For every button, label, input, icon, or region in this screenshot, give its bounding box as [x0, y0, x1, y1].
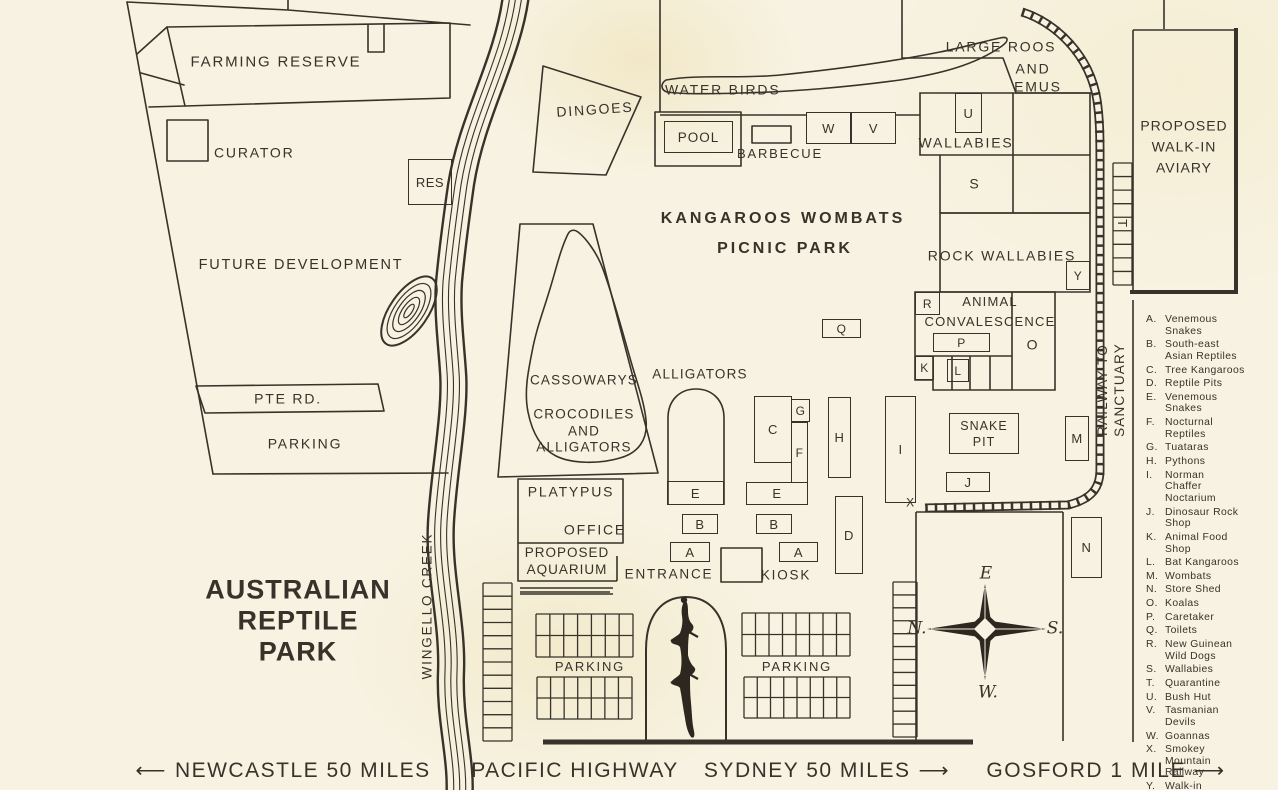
legend-item: U.Bush Hut	[1146, 692, 1258, 704]
legend-item: C.Tree Kangaroos	[1146, 365, 1258, 377]
box-w-goannas: W	[806, 112, 851, 144]
legend-item: W.Goannas	[1146, 731, 1258, 743]
wallabies-label: WALLABIES	[918, 134, 1013, 152]
parking-grid	[536, 614, 633, 657]
box-b2-asian-reptiles: B	[756, 514, 792, 534]
large-roos-label-3: EMUS	[1014, 78, 1062, 96]
parking-strip-east	[893, 582, 917, 737]
picnic-park-label: PICNIC PARK	[717, 239, 853, 259]
parking-south-label-2: PARKING	[762, 659, 832, 675]
letter-o-koalas: O	[1027, 336, 1040, 354]
parking-south-label-1: PARKING	[555, 659, 625, 675]
box-v-tasmanian-devils: V	[851, 112, 896, 144]
railway-to-sanctuary-label: RAILWAY TO SANCTUARY	[1095, 307, 1129, 473]
box-e1-venemous-snakes: E	[667, 481, 724, 505]
right-arrow-icon: ⟶	[918, 759, 950, 782]
box-d-reptile-pits: D	[835, 496, 863, 574]
legend-item: K.Animal Food Shop	[1146, 532, 1258, 555]
box-b1-asian-reptiles: B	[682, 514, 718, 534]
cassowarys-label: CASSOWARYS	[530, 373, 638, 390]
entrance-arch-goanna	[646, 597, 726, 741]
kiosk-box	[721, 548, 762, 582]
pacific-highway-label: PACIFIC HIGHWAY	[467, 758, 683, 784]
farming-reserve-label: FARMING RESERVE	[191, 54, 362, 73]
alligators-label: ALLIGATORS	[652, 367, 748, 384]
snake-pit-box: SNAKE PIT	[949, 413, 1019, 454]
parking-strip-west	[483, 583, 512, 741]
proposed-aquarium-label: PROPOSED AQUARIUM	[525, 544, 610, 578]
kangaroos-wombats-label: KANGAROOS WOMBATS	[661, 209, 905, 229]
box-p-caretaker: P	[933, 333, 990, 352]
barbecue-label: BARBECUE	[737, 146, 823, 162]
legend-item: G.Tuataras	[1146, 442, 1258, 454]
barbecue-box	[752, 126, 791, 143]
letter-t-quarantine: T	[1114, 219, 1130, 229]
legend-item: I.Norman Chaffer Noctarium	[1146, 470, 1258, 505]
future-development-label: FUTURE DEVELOPMENT	[199, 256, 404, 274]
legend-item: O.Koalas	[1146, 598, 1258, 610]
parking-grid	[742, 613, 850, 656]
box-j-dinosaur-rock-shop: J	[946, 472, 990, 492]
legend-item: A.Venemous Snakes	[1146, 314, 1258, 337]
wingello-creek-label: WINGELLO CREEK	[420, 533, 437, 680]
box-f-nocturnal-reptiles: F	[791, 422, 808, 483]
pool-box: POOL	[664, 121, 733, 153]
legend-item: N.Store Shed	[1146, 584, 1258, 596]
compass-rose	[927, 584, 1046, 680]
res-box: RES	[408, 159, 452, 205]
dingoes-pen	[533, 66, 641, 175]
compass-w: W.	[978, 682, 998, 703]
animal-convalescence-label: ANIMAL CONVALESCENCE	[925, 292, 1056, 332]
compass-e: E	[980, 563, 992, 584]
box-q-toilets: Q	[822, 319, 861, 338]
legend-item: R.New Guinean Wild Dogs	[1146, 639, 1258, 662]
legend-item: L.Bat Kangaroos	[1146, 557, 1258, 569]
compass-n: N.	[907, 618, 926, 639]
legend-item: T.Quarantine	[1146, 678, 1258, 690]
letter-s-wallabies: S	[969, 175, 980, 193]
legend-item: M.Wombats	[1146, 571, 1258, 583]
parking-west-label: PARKING	[268, 435, 343, 453]
large-roos-label-2: AND	[1016, 60, 1051, 78]
legend-item: X.Smokey Mountain Railway	[1146, 744, 1258, 779]
legend: A.Venemous Snakes B.South-east Asian Rep…	[1146, 314, 1258, 800]
crocodiles-label: CROCODILES AND ALLIGATORS	[533, 406, 634, 456]
box-r-wild-dogs: R	[915, 292, 940, 315]
parking-grid	[537, 677, 632, 719]
box-y-walk-in-aviary: Y	[1066, 261, 1090, 290]
compass-s: S.	[1047, 618, 1063, 639]
curator-label: CURATOR	[214, 144, 295, 162]
box-u-bush-hut: U	[955, 93, 982, 133]
box-i-noctarium: I	[885, 396, 916, 503]
left-arrow-icon: ⟵	[135, 759, 167, 782]
legend-item: S.Wallabies	[1146, 664, 1258, 676]
newcastle-label: ⟵NEWCASTLE 50 MILES	[131, 758, 434, 784]
map-linework	[0, 0, 1278, 800]
legend-item: J.Dinosaur Rock Shop	[1146, 507, 1258, 530]
box-l-bat-kangaroos: L	[947, 359, 969, 382]
box-a2-venemous-snakes: A	[779, 542, 818, 562]
north-enclosures	[533, 0, 1164, 175]
parking-grid	[744, 677, 850, 718]
rock-wallabies-label: ROCK WALLABIES	[928, 247, 1076, 265]
legend-item: E.Venemous Snakes	[1146, 392, 1258, 415]
box-k-animal-food-shop: K	[915, 356, 934, 380]
kiosk-label: KIOSK	[761, 568, 811, 585]
box-h-pythons: H	[828, 397, 851, 478]
railway-terminus-x: X	[906, 496, 916, 511]
legend-item: D.Reptile Pits	[1146, 378, 1258, 390]
legend-item: Q.Toilets	[1146, 625, 1258, 637]
platypus-label: PLATYPUS	[528, 483, 615, 501]
curator-box	[167, 120, 208, 161]
pte-rd-label: PTE RD.	[254, 390, 322, 408]
office-label: OFFICE	[564, 521, 626, 539]
legend-item: P.Caretaker	[1146, 612, 1258, 624]
scan-edge	[0, 790, 1278, 800]
box-n-store-shed: N	[1071, 517, 1102, 578]
box-m-wombats: M	[1065, 416, 1089, 461]
park-title: AUSTRALIAN REPTILE PARK	[205, 575, 391, 668]
box-g-tuataras: G	[791, 399, 810, 422]
park-map: FARMING RESERVE CURATOR FUTURE DEVELOPME…	[0, 0, 1278, 800]
sydney-label: SYDNEY 50 MILES⟶	[700, 758, 954, 784]
water-birds-label: WATER BIRDS	[665, 81, 780, 99]
legend-item: F.Nocturnal Reptiles	[1146, 417, 1258, 440]
large-roos-label-1: LARGE ROOS	[946, 38, 1057, 56]
box-a1-venemous-snakes: A	[670, 542, 710, 562]
legend-item: B.South-east Asian Reptiles	[1146, 339, 1258, 362]
entrance-label: ENTRANCE	[625, 567, 714, 584]
box-c-tree-kangaroos: C	[754, 396, 792, 463]
legend-item: H.Pythons	[1146, 456, 1258, 468]
box-e2-venemous-snakes: E	[746, 482, 808, 505]
legend-item: V.Tasmanian Devils	[1146, 705, 1258, 728]
proposed-aviary-label: PROPOSED WALK-IN AVIARY	[1140, 116, 1227, 179]
